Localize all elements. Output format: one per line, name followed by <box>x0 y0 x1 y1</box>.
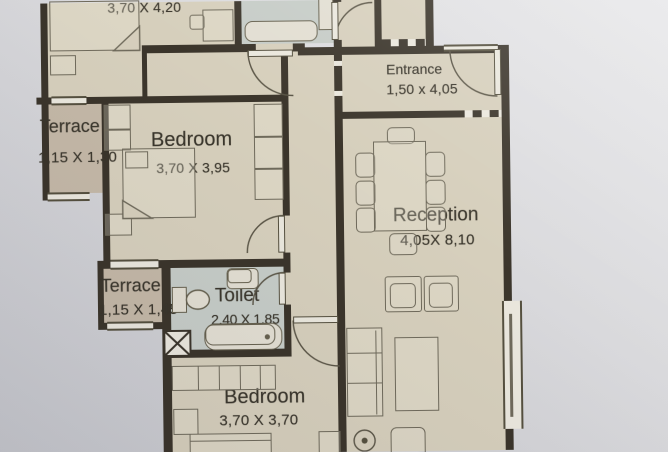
wc-cistern <box>172 287 187 313</box>
window <box>107 321 153 331</box>
floor-plan-photo: 3,70 X 4,20 Terrace 1,15 X 1,30 Bedroom … <box>0 0 668 452</box>
cabinet <box>104 104 131 129</box>
bed <box>49 0 140 51</box>
room-vestibule <box>381 0 425 39</box>
wall <box>234 1 242 52</box>
room-label-terrace-2: Terrace <box>101 276 161 296</box>
pillow <box>125 151 148 168</box>
room-dims-bedroom-bottom: 3,70 X 3,70 <box>219 412 298 429</box>
dining-chair <box>389 233 417 255</box>
bed <box>122 148 196 219</box>
door-threshold <box>444 44 498 52</box>
nightstand <box>173 409 198 435</box>
window <box>51 96 86 105</box>
bathtub <box>244 20 317 42</box>
nightstand <box>50 55 76 75</box>
room-dims-entrance: 1,50 x 4,05 <box>386 81 458 97</box>
wardrobe-divider <box>260 366 262 389</box>
armchair <box>390 427 425 452</box>
wardrobe <box>172 365 276 391</box>
window <box>48 192 90 202</box>
armchair-cushion <box>429 283 453 308</box>
room-lobby-nook <box>341 0 375 47</box>
sink-basin <box>228 269 252 283</box>
nightstand <box>105 213 132 235</box>
room-label-entrance: Entrance <box>386 62 442 77</box>
sofa-front-edge <box>375 330 377 414</box>
bed-headboard-line <box>191 440 271 442</box>
door-leaf <box>248 49 293 57</box>
dining-chair <box>425 180 445 205</box>
dining-chair <box>425 152 445 177</box>
door-leaf <box>279 273 286 305</box>
armchair <box>424 275 459 311</box>
wardrobe-divider <box>198 367 200 390</box>
door-leaf <box>494 49 502 95</box>
wardrobe <box>254 104 284 200</box>
opening-dashed <box>334 86 342 98</box>
window <box>110 259 158 270</box>
bathtub <box>204 323 282 351</box>
wall <box>425 0 434 46</box>
wall <box>142 53 148 96</box>
opening-dashed <box>334 56 342 68</box>
dining-chair <box>426 207 446 232</box>
room-label-terrace-1: Terrace <box>40 117 100 137</box>
room-hall <box>288 51 337 319</box>
floor-plan: 3,70 X 4,20 Terrace 1,15 X 1,30 Bedroom … <box>0 0 668 452</box>
opening-dashed <box>382 39 426 47</box>
armchair <box>385 276 422 312</box>
sofa <box>346 327 383 416</box>
stool <box>189 15 204 30</box>
coffee-table <box>394 337 439 412</box>
wardrobe-divider <box>255 168 282 170</box>
door-leaf <box>278 216 285 253</box>
wardrobe-divider <box>219 366 221 389</box>
room-dims-terrace-1: 1,15 X 1,30 <box>38 150 117 167</box>
bathtub-inner <box>205 324 275 346</box>
dresser <box>202 9 233 41</box>
room-dims-terrace-2: 1,15 X 1,45 <box>99 302 178 319</box>
room-closet <box>147 52 282 97</box>
door-leaf <box>293 316 338 324</box>
dresser <box>319 431 341 452</box>
dining-table <box>373 141 427 232</box>
wall <box>374 0 382 46</box>
wardrobe-divider <box>255 136 282 138</box>
opening-dashed <box>456 110 502 118</box>
wardrobe-divider <box>240 366 242 389</box>
bed <box>190 433 272 452</box>
sink <box>227 268 259 289</box>
armchair-cushion <box>390 283 416 308</box>
door-leaf <box>331 2 338 40</box>
